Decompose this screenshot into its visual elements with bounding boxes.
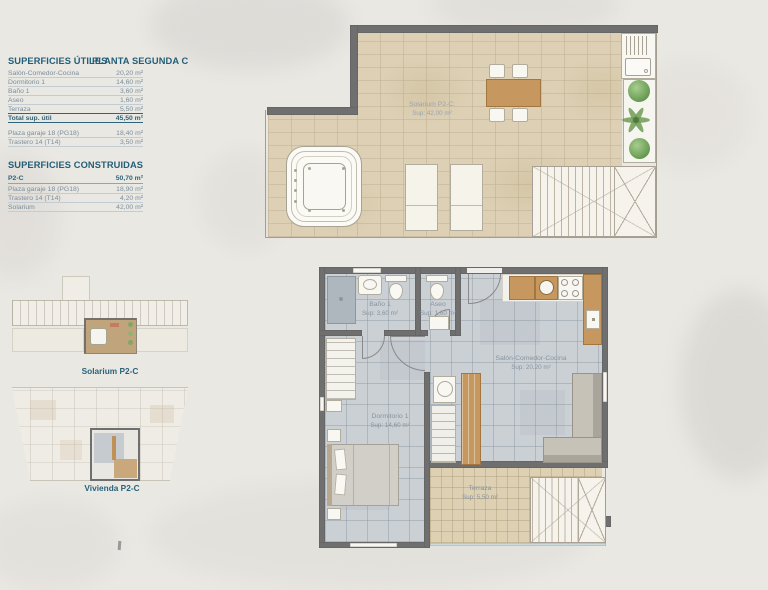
window-left-niche — [320, 397, 324, 411]
row-label: Salón-Comedor-Cocina — [8, 70, 79, 77]
thumbnail-roof-left — [12, 328, 84, 352]
appliance-knob — [592, 318, 595, 321]
row-label: Dormitorio 1 — [8, 79, 45, 86]
window-top — [353, 268, 381, 273]
room-name: Baño 1 — [345, 300, 415, 310]
bed-fold-line — [353, 445, 354, 505]
solarium-room-label: Solarium P2-C: Sup: 42,00 m² — [382, 100, 482, 118]
thumbnail-red-mark — [110, 323, 119, 327]
toilet-cistern — [385, 275, 407, 282]
room-area: Sup: 14,60 m² — [340, 422, 440, 431]
nightstand — [327, 429, 341, 442]
burner — [572, 290, 579, 297]
room-name: Salón-Comedor-Cocina — [481, 354, 581, 364]
row-value: 42,00 m² — [116, 204, 143, 211]
parapet-line-bottom — [265, 237, 657, 238]
jacuzzi-jets — [294, 169, 297, 172]
toilet-cistern — [426, 275, 448, 282]
table-row: Plaza garaje 18 (PG18) 18,90 m² — [8, 185, 143, 194]
row-value: 1,60 m² — [120, 97, 143, 104]
sink-drain — [644, 69, 648, 73]
row-value: 4,20 m² — [120, 195, 143, 202]
dining-table — [486, 79, 541, 107]
thumbnail-solarium-block — [62, 276, 90, 301]
table-total-row: Total sup. útil 45,50 m² — [8, 113, 143, 123]
thumbnail-unit-closet — [112, 436, 116, 460]
floor-shade — [480, 300, 540, 345]
thumbnail-plants — [128, 322, 133, 327]
solarium-wall-left — [350, 25, 358, 115]
row-label: Aseo — [8, 97, 24, 104]
row-label: Trastero 14 (T14) — [8, 195, 61, 202]
room-label-dormitorio: Dormitorio 1 Sup: 14,60 m² — [340, 412, 440, 430]
plant-bush — [629, 138, 650, 159]
watercolor-blotch — [680, 290, 768, 480]
row-value: 18,40 m² — [116, 130, 143, 137]
window-right — [603, 372, 607, 402]
wall-right — [602, 267, 608, 468]
table-main-row: P2-C 50,70 m² — [8, 174, 143, 184]
terrace-balustrade — [430, 543, 606, 546]
jacuzzi-seat — [303, 163, 346, 210]
floor-shade — [520, 390, 565, 435]
pillow — [334, 448, 347, 470]
burner — [572, 279, 579, 286]
lounger-fold-line — [451, 205, 482, 206]
wall-interior — [319, 330, 362, 336]
watercolor-blotch — [0, 500, 120, 590]
stair-diagonal — [530, 477, 606, 543]
dining-chair — [489, 108, 505, 122]
wood-closet — [461, 373, 481, 465]
solarium-wall-step — [267, 107, 358, 115]
dining-chair — [512, 64, 528, 78]
washer-drum — [437, 381, 453, 397]
window-bottom — [350, 543, 397, 547]
room-name: Aseo — [408, 300, 468, 310]
table-row: Trastero 14 (T14) 4,20 m² — [8, 194, 143, 203]
row-label: Trastero 14 (T14) — [8, 139, 61, 146]
table-row: Plaza garaje 18 (PG18) 18,40 m² — [8, 129, 143, 138]
outdoor-sink — [625, 58, 651, 76]
room-name: Dormitorio 1 — [340, 412, 440, 422]
table-row: Trastero 14 (T14) 3,50 m² — [8, 138, 143, 147]
room-label-bano: Baño 1 Sup: 3,60 m² — [345, 300, 415, 318]
row-value: 3,50 m² — [120, 139, 143, 146]
grill-grate — [626, 36, 650, 55]
palm-plant — [621, 105, 651, 135]
thumbnail-room-patch — [30, 400, 56, 420]
table-row: Salón-Comedor-Cocina 20,20 m² — [8, 69, 143, 78]
room-area: Sup: 3,60 m² — [345, 310, 415, 319]
row-value: 45,50 m² — [116, 115, 143, 122]
room-name: Solarium P2-C: — [382, 100, 482, 110]
bedroom-wardrobe — [326, 338, 356, 400]
plan-sheet: SUPERFICIES ÚTILES PLANTA SEGUNDA C Saló… — [0, 0, 768, 576]
dining-chair — [489, 64, 505, 78]
bed-headboard — [327, 444, 332, 506]
table-row: Aseo 1,60 m² — [8, 96, 143, 105]
row-label: Terraza — [8, 106, 31, 113]
sofa-bottom — [543, 437, 602, 463]
bedroom-cabinet — [326, 400, 342, 412]
parapet-line-left — [265, 110, 266, 238]
row-value: 14,60 m² — [116, 79, 143, 86]
room-area: Sup: 42,00 m² — [382, 110, 482, 119]
thumbnail-vivienda-label: Vivienda P2-C — [48, 483, 176, 493]
thumbnail-solarium-label: Solarium P2-C — [48, 366, 172, 376]
construidas-table-title: SUPERFICIES CONSTRUIDAS — [8, 160, 143, 170]
dining-chair — [512, 108, 528, 122]
stair-diagonal — [532, 166, 656, 237]
print-speck — [118, 541, 122, 550]
burner — [561, 290, 568, 297]
row-label: Total sup. útil — [8, 115, 52, 122]
solarium-wall-top — [350, 25, 658, 33]
plant-bush — [628, 80, 650, 102]
row-label: Plaza garaje 18 (PG18) — [8, 130, 79, 137]
palm-center — [633, 117, 639, 123]
sofa-right — [572, 373, 602, 441]
table-row: Dormitorio 1 14,60 m² — [8, 78, 143, 87]
pillow — [334, 474, 347, 496]
sun-lounger — [450, 164, 483, 231]
lounger-fold-line — [406, 205, 437, 206]
thumbnail-room-patch — [60, 440, 82, 460]
kitchen-sink — [539, 280, 554, 295]
planta-subtitle: PLANTA SEGUNDA C — [92, 56, 188, 66]
row-value: 50,70 m² — [116, 175, 143, 182]
terrace-edge-line — [605, 468, 606, 543]
row-value: 20,20 m² — [116, 70, 143, 77]
row-label: Plaza garaje 18 (PG18) — [8, 186, 79, 193]
room-label-salon: Salón-Comedor-Cocina Sup: 20,20 m² — [481, 354, 581, 372]
thumbnail-unit-terrace — [114, 459, 137, 478]
entry-opening — [467, 268, 502, 273]
shower-drain — [339, 297, 343, 301]
row-value: 18,90 m² — [116, 186, 143, 193]
row-label: Baño 1 — [8, 88, 30, 95]
parapet-line-right — [656, 28, 657, 238]
bed-foot-line — [389, 445, 390, 505]
wall-bedroom-terrace — [424, 372, 430, 548]
kitchen-wood-cabinet — [509, 276, 535, 300]
nightstand — [327, 508, 341, 520]
sink-basin — [363, 279, 377, 290]
room-label-terraza: Terraza Sup: 5,50 m² — [440, 484, 520, 502]
room-area: Sup: 5,50 m² — [440, 494, 520, 503]
thumbnail-jacuzzi — [90, 328, 107, 345]
room-area: Sup: 20,20 m² — [481, 364, 581, 373]
sun-lounger — [405, 164, 438, 231]
burner — [561, 279, 568, 286]
table-row: Solarium 42,00 m² — [8, 203, 143, 212]
room-name: Terraza — [440, 484, 520, 494]
room-area: Sup: 1,60 m² — [408, 310, 468, 319]
row-value: 5,50 m² — [120, 106, 143, 113]
thumbnail-room-patch — [150, 405, 174, 423]
row-value: 3,60 m² — [120, 88, 143, 95]
row-label: P2-C — [8, 175, 24, 182]
room-label-aseo: Aseo Sup: 1,60 m² — [408, 300, 468, 318]
table-row: Baño 1 3,60 m² — [8, 87, 143, 96]
row-label: Solarium — [8, 204, 35, 211]
